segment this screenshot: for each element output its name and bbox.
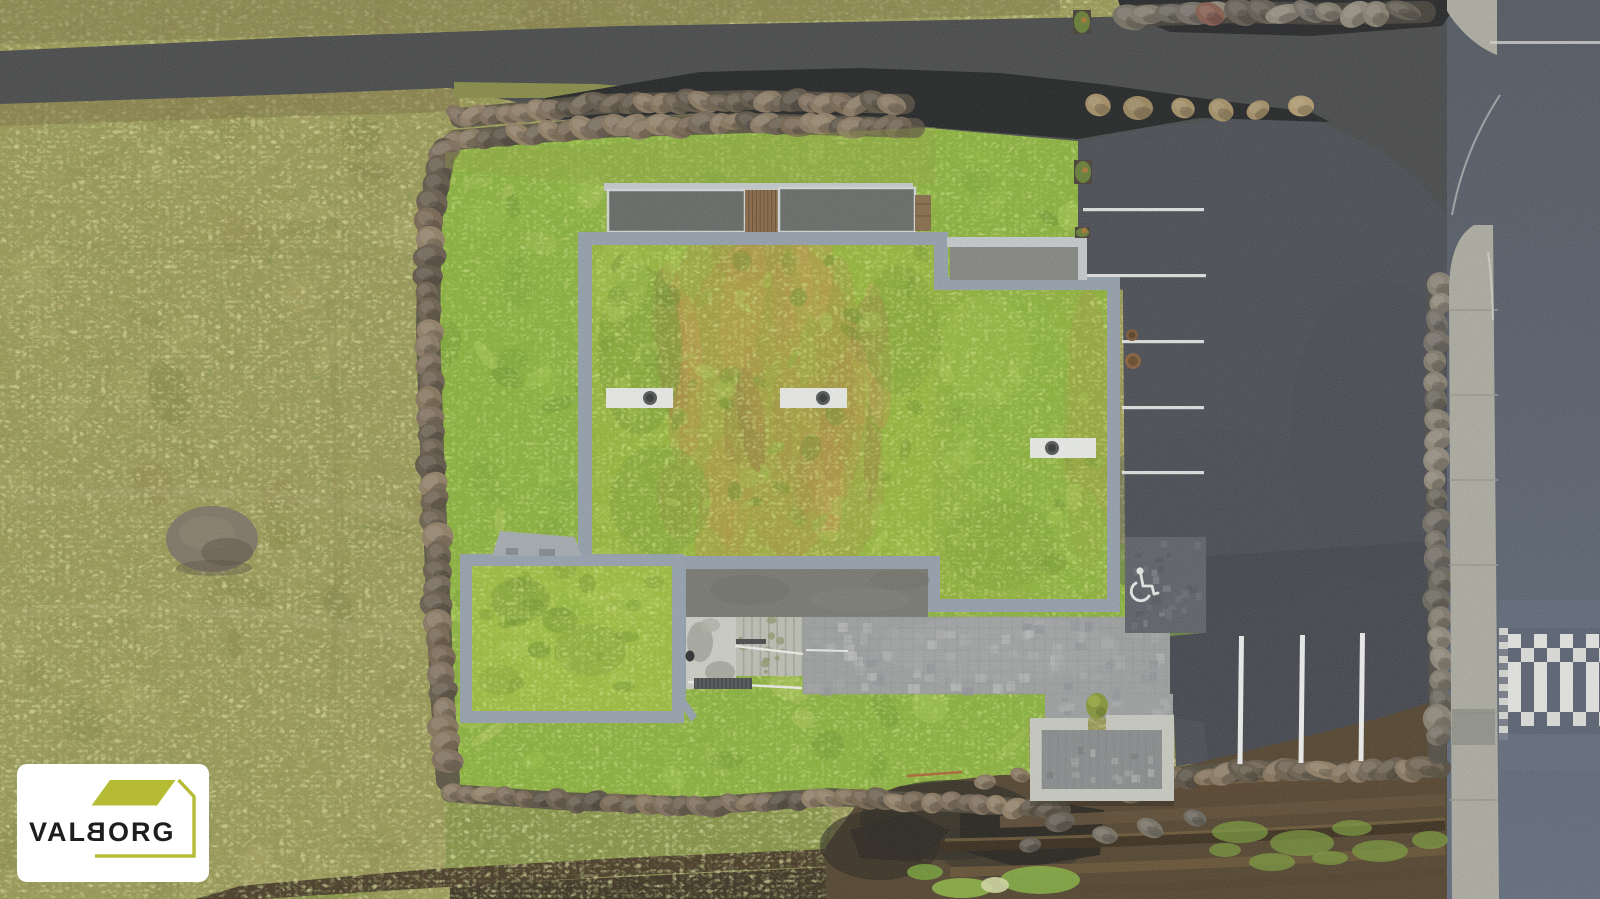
svg-text:ORG: ORG <box>108 817 176 847</box>
svg-text:VAL: VAL <box>29 817 87 847</box>
svg-text:B: B <box>86 817 106 847</box>
